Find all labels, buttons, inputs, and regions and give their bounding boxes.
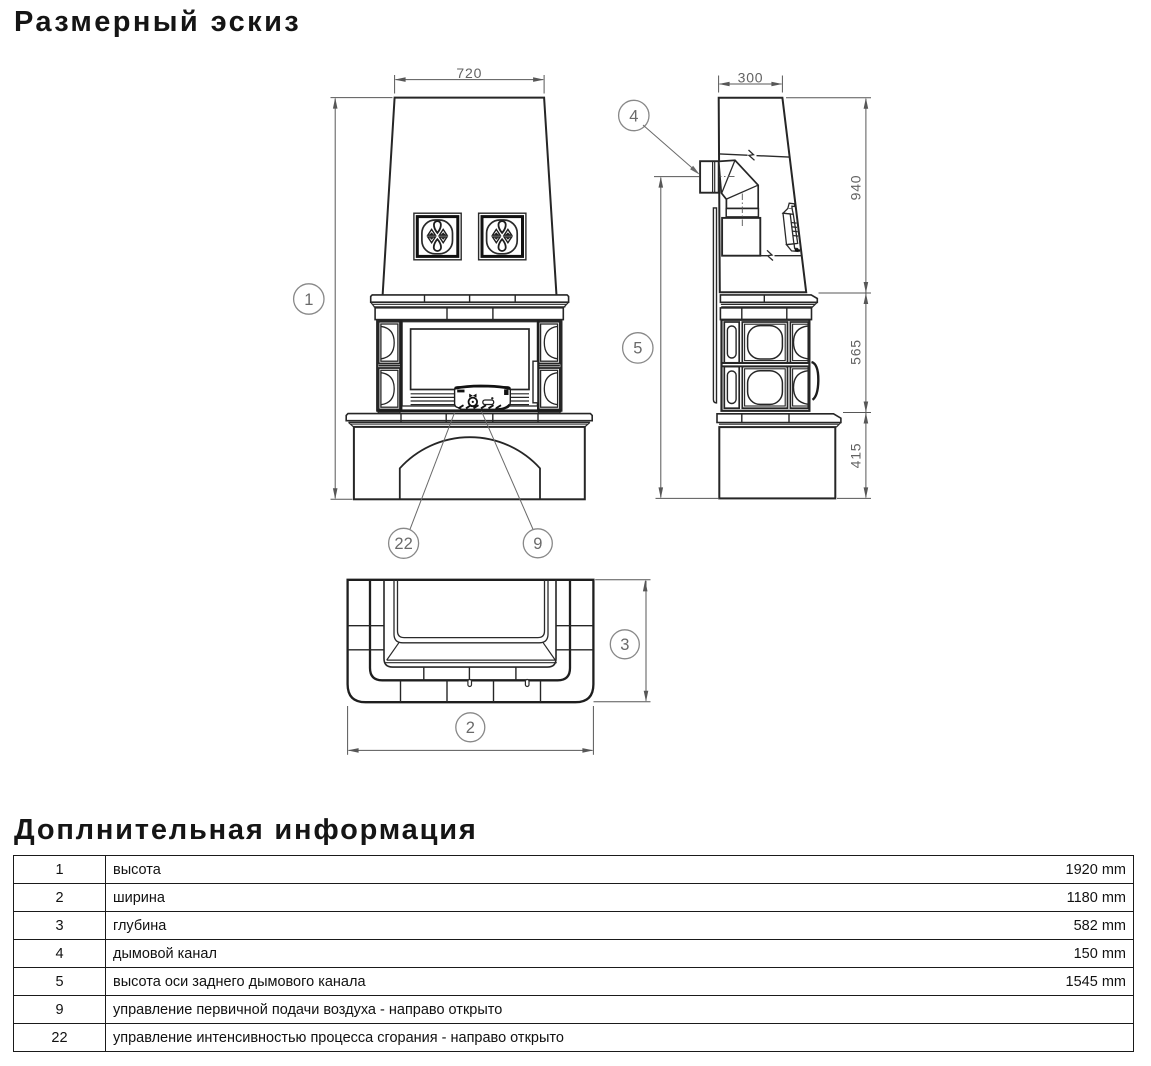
- svg-text:940: 940: [848, 175, 864, 201]
- svg-text:300: 300: [738, 69, 764, 85]
- svg-text:1: 1: [304, 291, 313, 309]
- svg-text:2: 2: [466, 719, 475, 737]
- svg-text:415: 415: [848, 443, 864, 469]
- svg-text:720: 720: [456, 65, 482, 81]
- svg-text:9: 9: [533, 535, 542, 553]
- svg-text:22: 22: [394, 535, 412, 553]
- svg-text:3: 3: [620, 636, 629, 654]
- svg-text:5: 5: [633, 340, 642, 358]
- svg-text:4: 4: [629, 107, 638, 125]
- svg-text:565: 565: [848, 339, 864, 365]
